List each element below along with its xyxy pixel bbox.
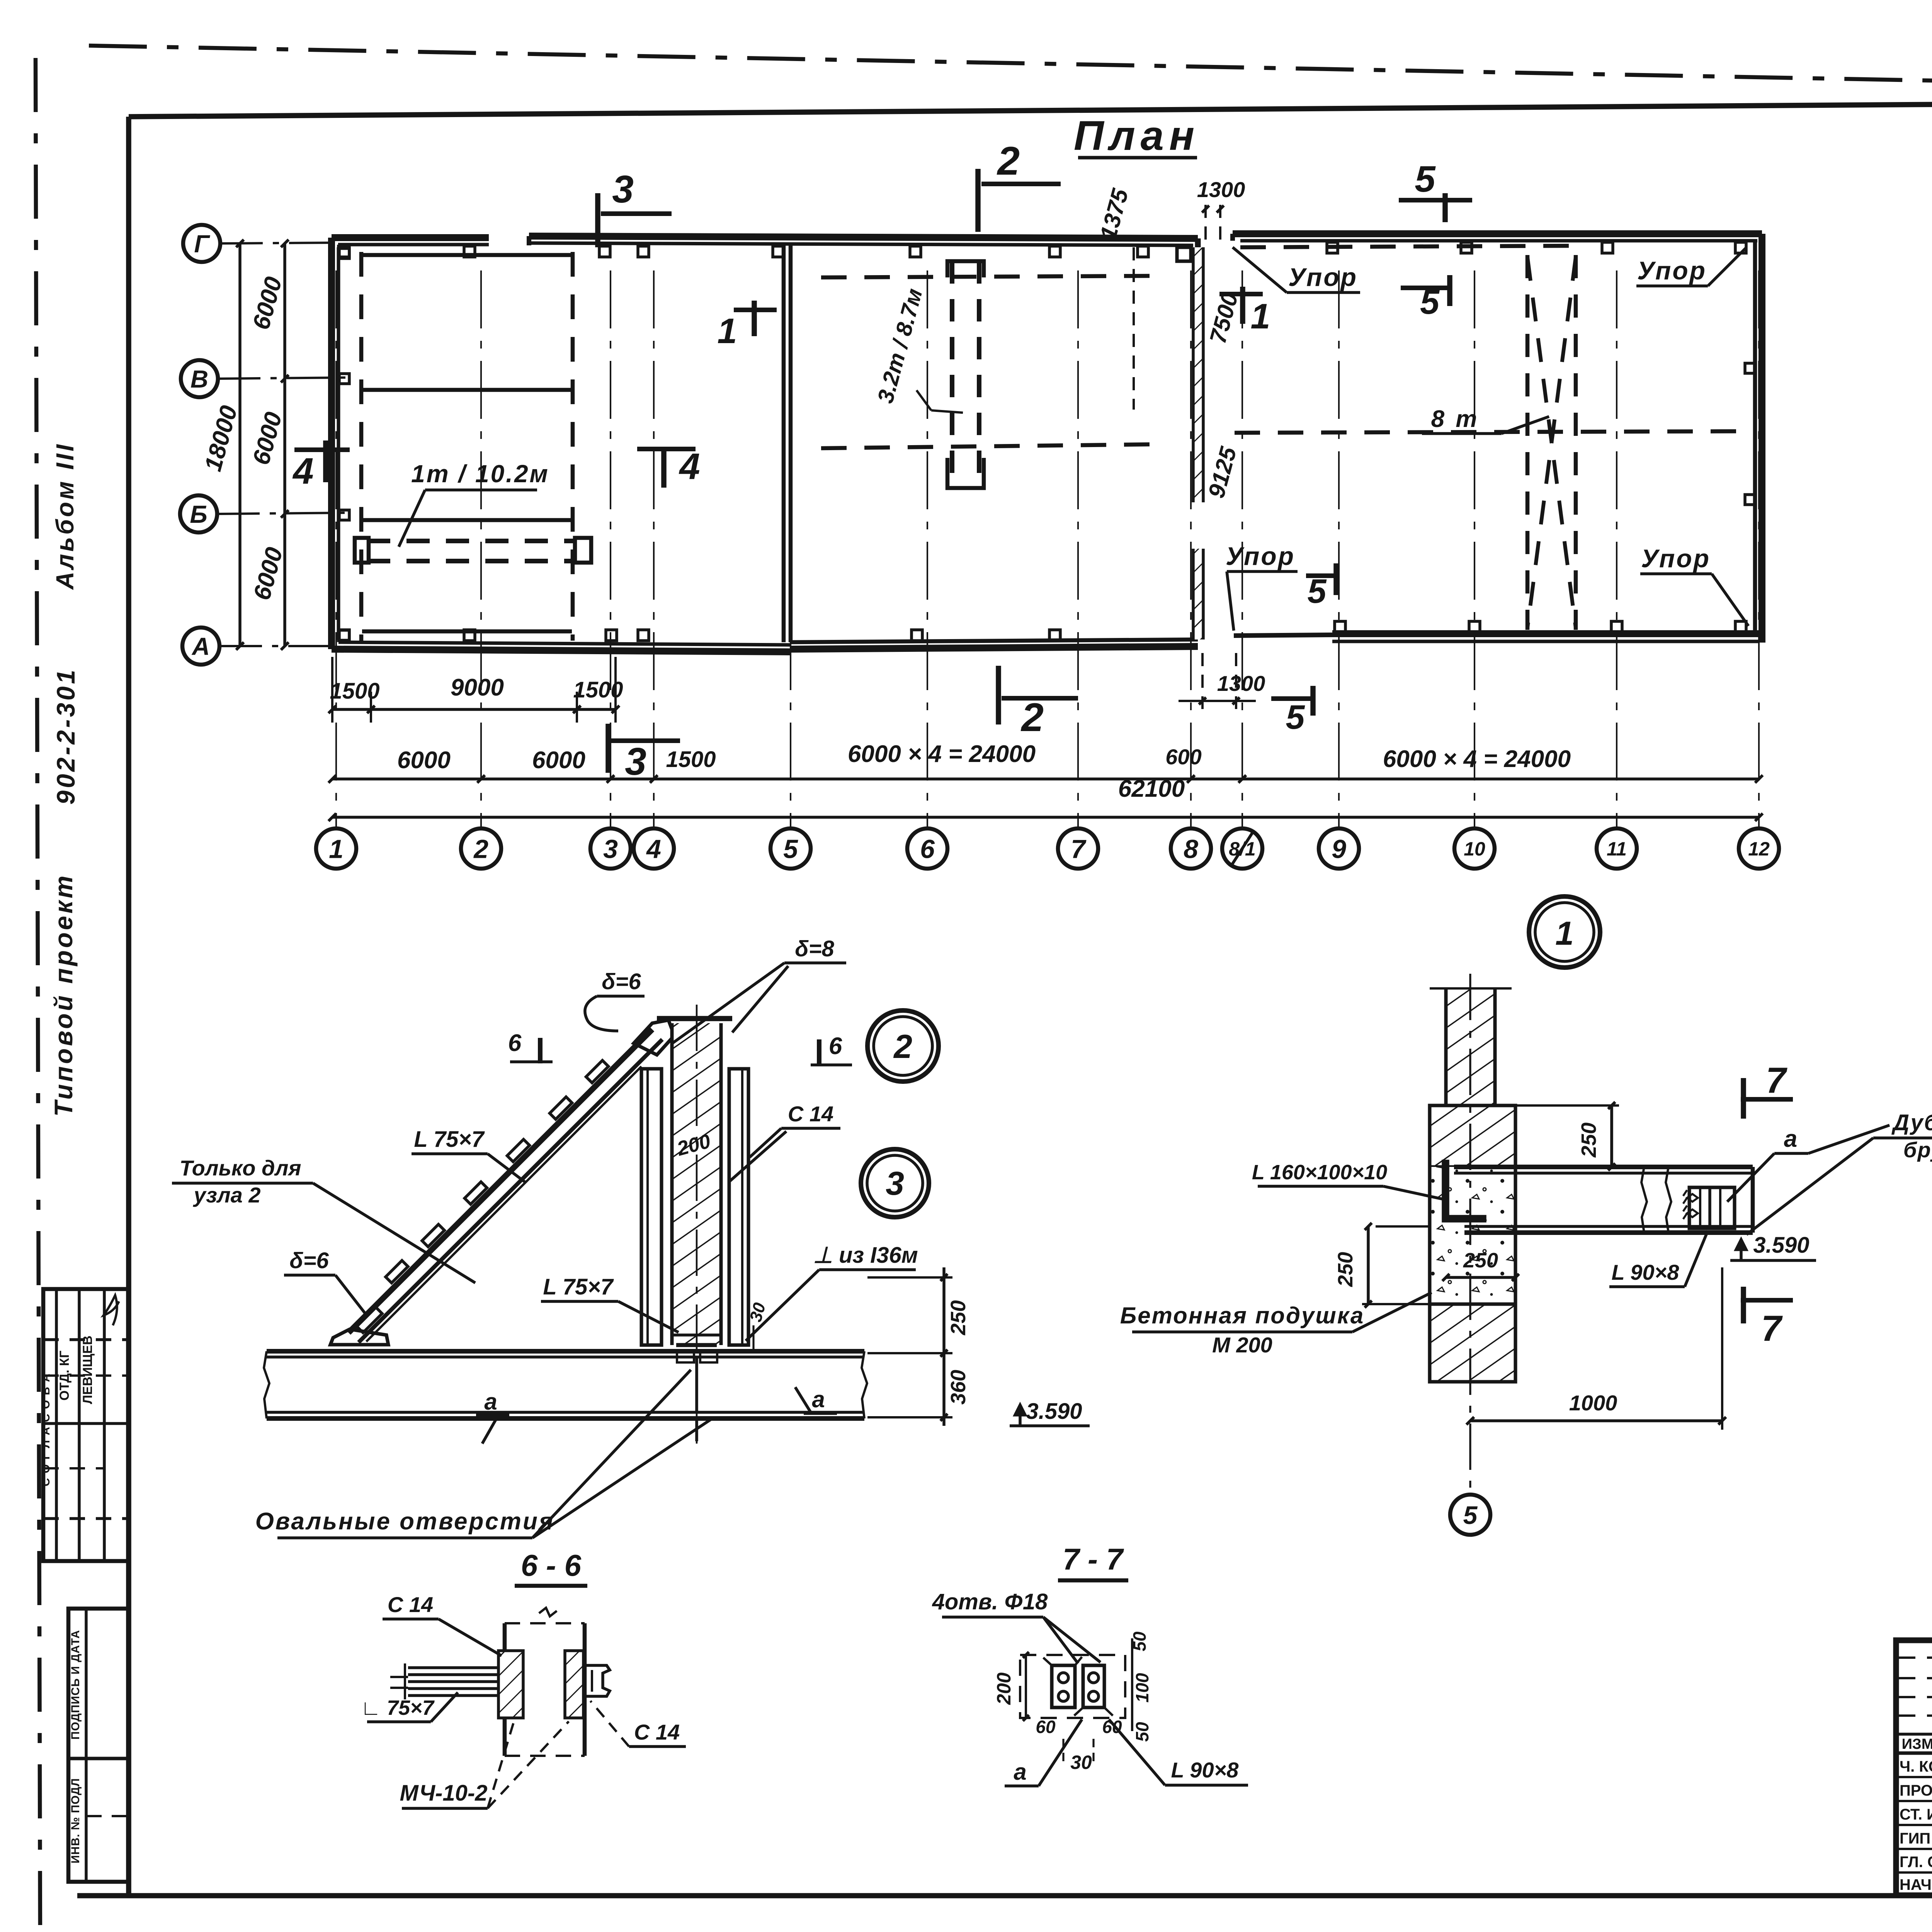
svg-text:200: 200 xyxy=(993,1672,1015,1705)
svg-text:1: 1 xyxy=(1250,297,1270,336)
svg-text:250: 250 xyxy=(1577,1122,1600,1158)
svg-text:НАЧ. ОТД: НАЧ. ОТД xyxy=(1900,1876,1932,1893)
svg-text:Типовой проект: Типовой проект xyxy=(49,873,78,1117)
svg-text:Упор: Упор xyxy=(1226,542,1295,570)
svg-text:С 14: С 14 xyxy=(388,1592,433,1617)
svg-text:1500: 1500 xyxy=(666,747,716,772)
svg-text:7: 7 xyxy=(1766,1060,1787,1100)
svg-text:9: 9 xyxy=(1332,834,1346,864)
svg-text:Ч. КОНСТ: Ч. КОНСТ xyxy=(1900,1758,1932,1775)
svg-text:1: 1 xyxy=(1555,915,1574,952)
svg-text:ГЛ. СПЕЦ: ГЛ. СПЕЦ xyxy=(1900,1854,1932,1871)
svg-text:2: 2 xyxy=(473,834,488,864)
svg-text:ГИП: ГИП xyxy=(1900,1830,1930,1847)
svg-text:7: 7 xyxy=(1071,834,1087,864)
svg-text:∟ 75×7: ∟ 75×7 xyxy=(361,1696,435,1719)
svg-text:7: 7 xyxy=(1761,1308,1783,1349)
svg-text:ЛЕВИЩЕВ: ЛЕВИЩЕВ xyxy=(80,1335,95,1404)
svg-text:Упор: Упор xyxy=(1641,544,1711,573)
svg-text:5: 5 xyxy=(1308,572,1327,610)
svg-text:30: 30 xyxy=(1070,1752,1092,1773)
svg-text:ОТД. КГ: ОТД. КГ xyxy=(57,1350,72,1401)
svg-text:брусок: брусок xyxy=(1903,1138,1932,1162)
svg-text:узла 2: узла 2 xyxy=(192,1183,260,1207)
svg-text:ПОДПИСЬ И ДАТА: ПОДПИСЬ И ДАТА xyxy=(69,1630,82,1740)
svg-text:L 90×8: L 90×8 xyxy=(1612,1260,1680,1284)
svg-text:9000: 9000 xyxy=(451,674,504,701)
svg-text:Упор: Упор xyxy=(1288,263,1358,291)
svg-text:5: 5 xyxy=(783,834,798,864)
svg-text:4отв. Φ18: 4отв. Φ18 xyxy=(932,1589,1048,1614)
svg-text:6 - 6: 6 - 6 xyxy=(521,1548,582,1582)
svg-text:А: А xyxy=(191,633,210,660)
svg-text:5: 5 xyxy=(1415,158,1436,200)
svg-text:Бетонная подушка: Бетонная подушка xyxy=(1120,1303,1365,1328)
svg-text:1000: 1000 xyxy=(1569,1391,1617,1415)
svg-text:250: 250 xyxy=(947,1300,970,1335)
svg-text:3: 3 xyxy=(625,740,646,783)
svg-text:Дубовый: Дубовый xyxy=(1891,1110,1932,1135)
svg-text:5: 5 xyxy=(1286,698,1305,736)
svg-text:250: 250 xyxy=(1334,1252,1357,1287)
svg-text:a: a xyxy=(812,1386,825,1412)
svg-text:a: a xyxy=(1014,1759,1026,1785)
svg-text:Упор: Упор xyxy=(1637,256,1707,285)
svg-text:2: 2 xyxy=(1020,695,1044,740)
svg-text:1500: 1500 xyxy=(330,679,379,704)
svg-text:100: 100 xyxy=(1132,1673,1152,1702)
svg-text:3: 3 xyxy=(886,1165,904,1202)
svg-text:δ=6: δ=6 xyxy=(602,969,641,994)
svg-text:МЧ-10-2: МЧ-10-2 xyxy=(400,1781,488,1806)
svg-text:60: 60 xyxy=(1102,1717,1122,1737)
svg-text:1500: 1500 xyxy=(573,677,623,702)
svg-text:a: a xyxy=(1784,1126,1797,1152)
svg-text:6: 6 xyxy=(829,1033,842,1060)
svg-text:902-2-301: 902-2-301 xyxy=(51,668,80,805)
svg-text:10: 10 xyxy=(1464,838,1485,860)
svg-text:1: 1 xyxy=(717,311,737,351)
svg-text:12: 12 xyxy=(1748,838,1770,860)
svg-text:Б: Б xyxy=(190,500,207,528)
svg-text:δ=8: δ=8 xyxy=(795,936,834,961)
svg-text:1300: 1300 xyxy=(1217,671,1265,696)
svg-text:6: 6 xyxy=(920,834,935,864)
svg-text:L 160×100×10: L 160×100×10 xyxy=(1252,1161,1387,1184)
svg-text:Альбом III: Альбом III xyxy=(51,442,79,590)
svg-text:План: План xyxy=(1074,112,1200,159)
svg-text:50: 50 xyxy=(1129,1631,1150,1651)
svg-text:4: 4 xyxy=(679,446,700,487)
svg-text:6000: 6000 xyxy=(532,747,585,774)
svg-text:1300: 1300 xyxy=(1197,177,1245,202)
svg-text:С О Г Л А С О В А: С О Г Л А С О В А xyxy=(39,1373,52,1486)
svg-text:7 - 7: 7 - 7 xyxy=(1063,1542,1124,1576)
svg-text:4: 4 xyxy=(646,834,661,864)
svg-text:L 75×7: L 75×7 xyxy=(414,1127,485,1152)
svg-text:62100: 62100 xyxy=(1118,776,1185,802)
svg-text:8: 8 xyxy=(1184,834,1198,864)
svg-text:ИЗМ: ИЗМ xyxy=(1902,1736,1932,1752)
svg-text:11: 11 xyxy=(1607,838,1627,860)
svg-text:250: 250 xyxy=(1463,1249,1498,1272)
svg-text:5: 5 xyxy=(1463,1501,1478,1529)
svg-text:С 14: С 14 xyxy=(788,1102,833,1126)
svg-text:В: В xyxy=(190,365,208,393)
svg-text:6000 × 4 = 24000: 6000 × 4 = 24000 xyxy=(1383,746,1571,772)
svg-text:С 14: С 14 xyxy=(634,1720,680,1744)
svg-text:600: 600 xyxy=(1165,745,1201,769)
svg-text:8 т: 8 т xyxy=(1431,406,1480,432)
svg-text:⊥ из I36м: ⊥ из I36м xyxy=(813,1243,918,1268)
svg-text:δ=6: δ=6 xyxy=(289,1248,329,1273)
svg-text:60: 60 xyxy=(1036,1717,1056,1737)
svg-text:3.590: 3.590 xyxy=(1026,1399,1082,1424)
svg-text:2: 2 xyxy=(893,1028,912,1065)
svg-text:3: 3 xyxy=(603,834,618,864)
svg-text:6000 × 4 = 24000: 6000 × 4 = 24000 xyxy=(848,741,1036,767)
svg-text:СТ. ИНЖ: СТ. ИНЖ xyxy=(1900,1806,1932,1823)
svg-text:6: 6 xyxy=(508,1030,522,1056)
svg-text:Г: Г xyxy=(194,230,210,258)
svg-text:Овальные отверстия: Овальные отверстия xyxy=(255,1508,555,1535)
svg-text:Только для: Только для xyxy=(180,1156,301,1180)
svg-text:50: 50 xyxy=(1132,1722,1152,1742)
svg-text:3.590: 3.590 xyxy=(1753,1233,1809,1258)
svg-text:4: 4 xyxy=(292,451,313,492)
svg-text:360: 360 xyxy=(947,1370,970,1405)
svg-text:L 90×8: L 90×8 xyxy=(1171,1758,1239,1782)
svg-text:3: 3 xyxy=(612,168,634,211)
svg-text:6000: 6000 xyxy=(397,747,451,774)
svg-text:2: 2 xyxy=(997,139,1020,184)
svg-text:ИНВ. № ПОДЛ: ИНВ. № ПОДЛ xyxy=(69,1778,82,1863)
svg-text:a: a xyxy=(484,1389,497,1415)
svg-text:ПРОВЕР.: ПРОВЕР. xyxy=(1900,1782,1932,1799)
svg-text:1: 1 xyxy=(329,834,344,864)
svg-text:М 200: М 200 xyxy=(1212,1333,1272,1357)
svg-text:5: 5 xyxy=(1420,283,1440,321)
svg-text:L 75×7: L 75×7 xyxy=(543,1274,614,1299)
